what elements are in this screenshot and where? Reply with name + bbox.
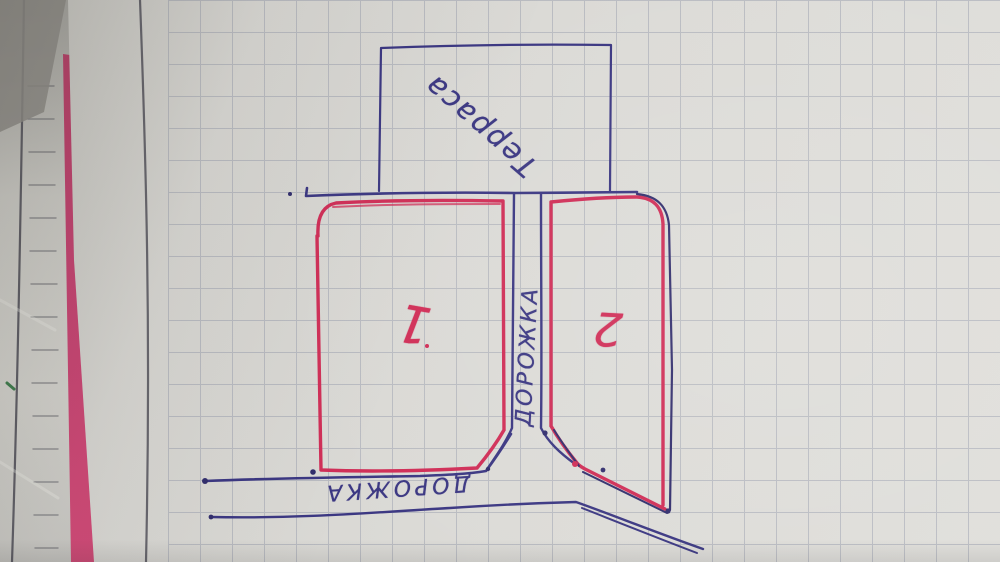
- notebook-photo: Терраса ДОРОЖКА ДОРОЖКА 1 2: [0, 0, 1000, 562]
- house-wall-line: [288, 188, 637, 196]
- hand-drawn-plan: [0, 0, 1000, 562]
- plot2-number: 2: [581, 299, 636, 360]
- page-margin-line: [140, 0, 148, 562]
- plot1-number: 1: [383, 290, 444, 356]
